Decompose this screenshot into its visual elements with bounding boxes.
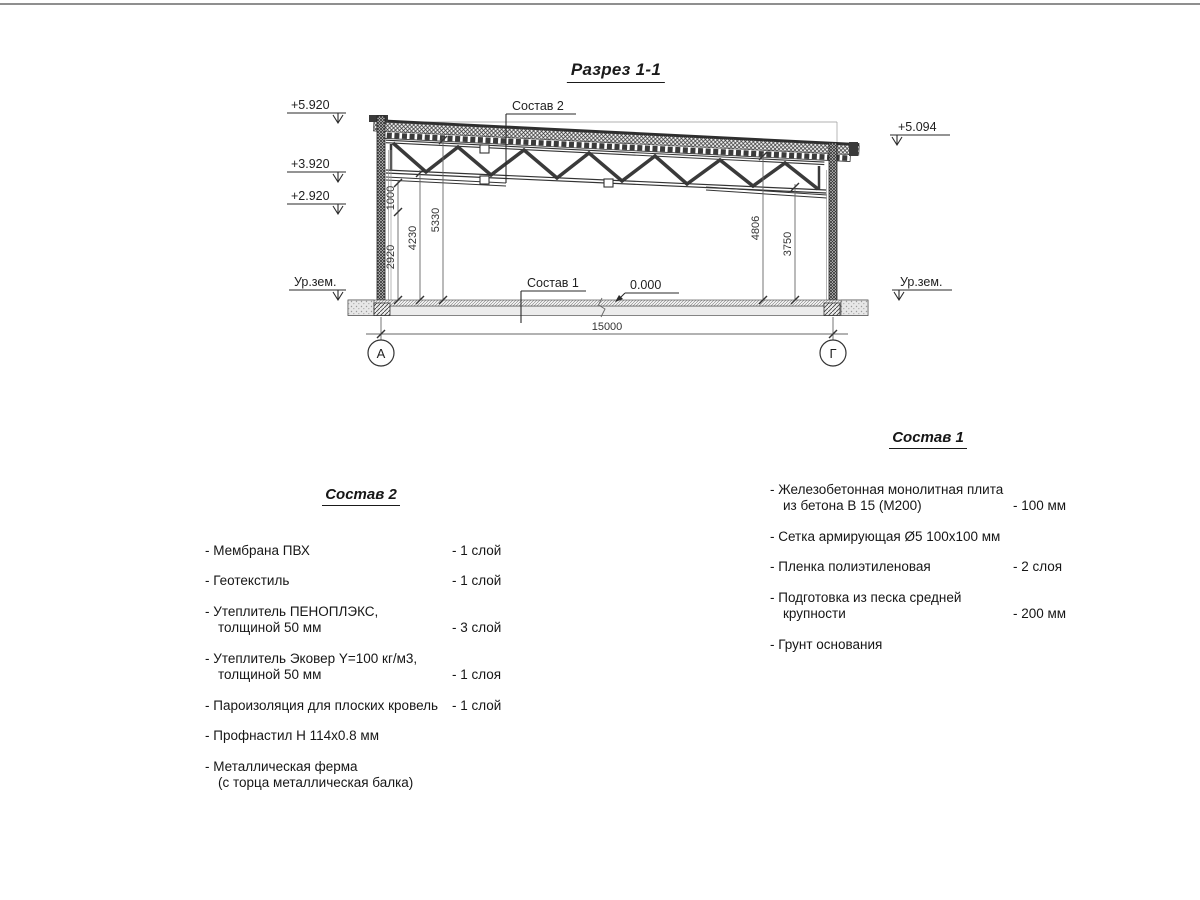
item-name: - Профнастил Н 114х0.8 мм [205, 728, 452, 745]
item-value: - 2 слоя [1013, 559, 1086, 576]
floor-body [348, 306, 868, 316]
list-item: - Железобетонная монолитная плитаиз бето… [770, 482, 1086, 515]
drawing-sheet: Разрез 1-1 [0, 0, 1200, 900]
elevation-marks-right: +5.094 Ур.зем. [890, 120, 952, 300]
item-value: - 1 слой [452, 543, 517, 560]
item-value: - 3 слой [452, 620, 517, 637]
sostav1-items: - Железобетонная монолитная плитаиз бето… [770, 482, 1086, 654]
sostav2-title: Состав 2 [322, 487, 400, 506]
footing-A [374, 303, 390, 316]
list-item: - Сетка армирующая Ø5 100х100 мм [770, 529, 1086, 546]
list-item: - Грунт основания [770, 637, 1086, 654]
axis-label-A: А [377, 346, 386, 361]
ground-level-right: Ур.зем. [900, 275, 942, 289]
list-item: - Мембрана ПВХ- 1 слой [205, 543, 517, 560]
vertical-dimensions: 1000 2920 4230 5330 4806 3750 [385, 136, 799, 304]
sostav1-title: Состав 1 [889, 430, 967, 449]
elevation-3920: +3.920 [291, 157, 330, 171]
column-G [829, 143, 837, 306]
truss-connection-plate [480, 145, 489, 153]
list-item: - Пленка полиэтиленовая- 2 слоя [770, 559, 1086, 576]
span-dimension: 15000 А Г [366, 317, 848, 366]
dim-4806: 4806 [750, 216, 762, 240]
dim-1000: 1000 [385, 186, 397, 210]
item-name: - Грунт основания [770, 637, 1013, 654]
list-item: - Подготовка из песка среднейкрупности- … [770, 590, 1086, 623]
zero-level-label: 0.000 [630, 278, 661, 292]
dim-5330: 5330 [430, 208, 442, 232]
section-drawing: 1000 2920 4230 5330 4806 3750 [0, 0, 1200, 430]
item-value: - 200 мм [1013, 606, 1086, 623]
roof-assembly [373, 119, 860, 166]
item-name: - Пароизоляция для плоских кровель [205, 698, 452, 715]
ground-level-left: Ур.зем. [294, 275, 336, 289]
item-name: - Утеплитель ПЕНОПЛЭКС,толщиной 50 мм [205, 604, 452, 637]
sostav1-list: Состав 1 - Железобетонная монолитная пли… [770, 430, 1086, 667]
item-value: - 1 слой [452, 698, 517, 715]
floor-slab [348, 298, 868, 317]
item-name: - Пленка полиэтиленовая [770, 559, 1013, 576]
column-A [377, 116, 385, 306]
item-value: - 1 слоя [452, 667, 517, 684]
elevation-2920: +2.920 [291, 189, 330, 203]
sostav1-leader-label: Состав 1 [527, 276, 579, 290]
item-value: - 1 слой [452, 573, 517, 590]
axis-label-G: Г [829, 346, 836, 361]
roof-right-edge-plate [849, 142, 858, 156]
list-item: - Утеплитель Эковер Y=100 кг/м3,толщиной… [205, 651, 517, 684]
truss-connection-plate [480, 176, 489, 184]
elevation-marks-left: +5.920 +3.920 +2.920 Ур.зем. [287, 98, 346, 300]
elevation-5920: +5.920 [291, 98, 330, 112]
list-item: - Пароизоляция для плоских кровель- 1 сл… [205, 698, 517, 715]
sostav2-items: - Мембрана ПВХ- 1 слой- Геотекстиль- 1 с… [205, 543, 517, 792]
item-value: - 100 мм [1013, 498, 1086, 515]
floor-top-screed [348, 300, 868, 306]
item-name: - Подготовка из песка среднейкрупности [770, 590, 1013, 623]
sostav2-list: Состав 2 - Мембрана ПВХ- 1 слой- Геотекс… [205, 487, 517, 806]
item-name: - Геотекстиль [205, 573, 452, 590]
list-item: - Профнастил Н 114х0.8 мм [205, 728, 517, 745]
list-item: - Геотекстиль- 1 слой [205, 573, 517, 590]
sostav2-leader-label: Состав 2 [512, 99, 564, 113]
item-name: - Утеплитель Эковер Y=100 кг/м3,толщиной… [205, 651, 452, 684]
item-name: - Мембрана ПВХ [205, 543, 452, 560]
truss-connection-plate [604, 179, 613, 187]
item-name: - Железобетонная монолитная плитаиз бето… [770, 482, 1013, 515]
item-name: - Металлическая ферма(с торца металличес… [205, 759, 452, 792]
elevation-5094: +5.094 [898, 120, 937, 134]
dim-2920: 2920 [385, 245, 397, 269]
footing-G [824, 303, 840, 316]
floor-right-extension [841, 300, 868, 316]
list-item: - Утеплитель ПЕНОПЛЭКС,толщиной 50 мм- 3… [205, 604, 517, 637]
floor-left-extension [348, 300, 374, 316]
list-item: - Металлическая ферма(с торца металличес… [205, 759, 517, 792]
dim-15000: 15000 [592, 321, 623, 333]
dim-4230: 4230 [407, 226, 419, 250]
item-name: - Сетка армирующая Ø5 100х100 мм [770, 529, 1013, 546]
dim-3750: 3750 [782, 232, 794, 256]
